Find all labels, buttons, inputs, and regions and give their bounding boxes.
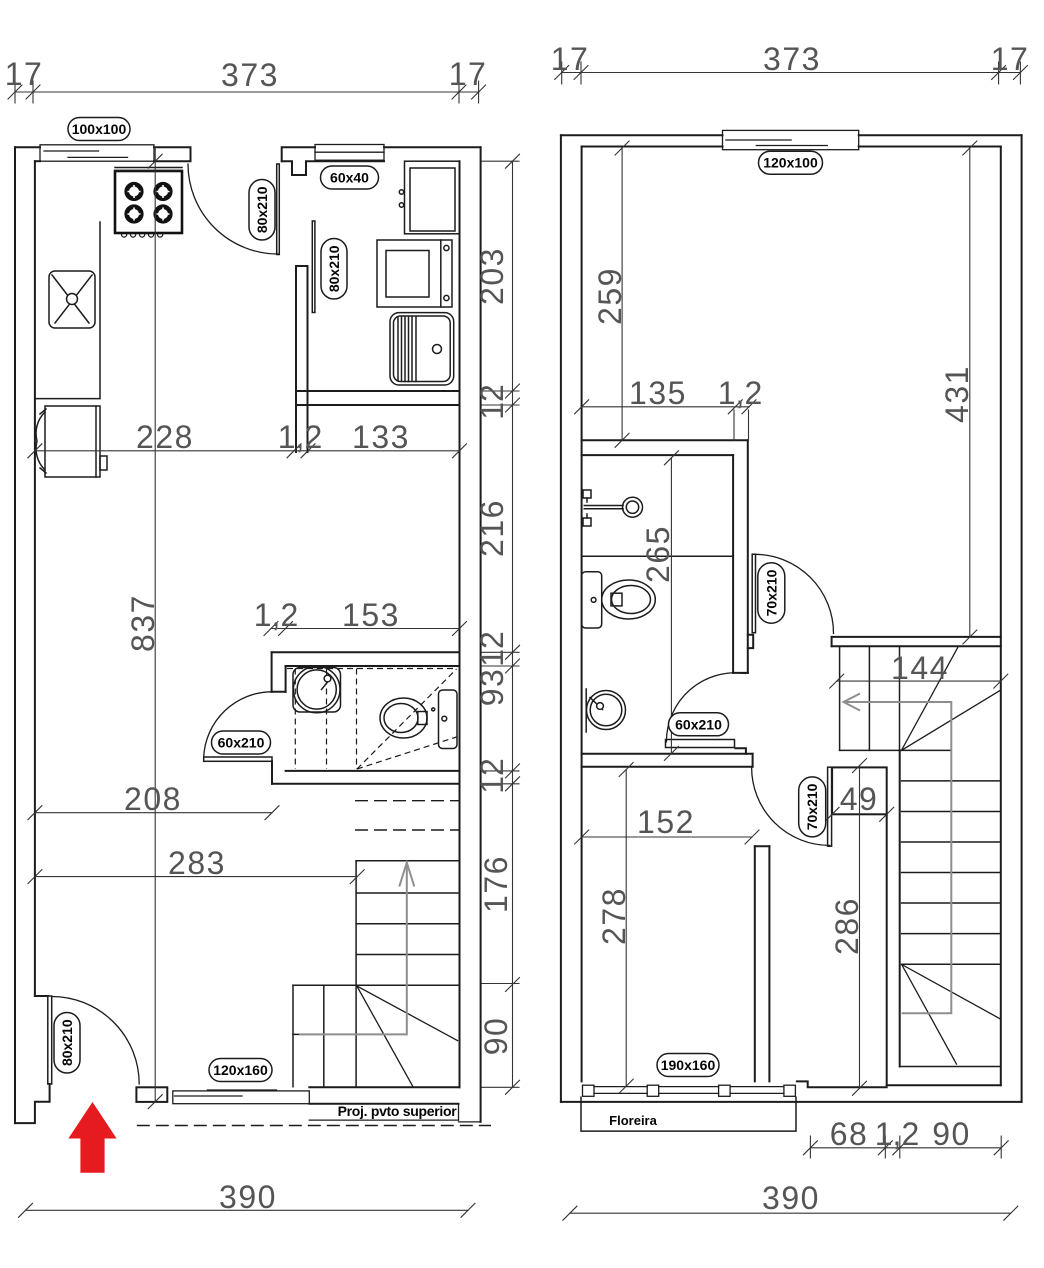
svg-text:17: 17 — [5, 56, 44, 92]
svg-text:1,2: 1,2 — [718, 375, 762, 411]
svg-text:144: 144 — [891, 650, 949, 686]
svg-text:68: 68 — [830, 1116, 869, 1152]
svg-text:133: 133 — [352, 419, 410, 455]
svg-text:153: 153 — [342, 597, 400, 633]
svg-text:60x40: 60x40 — [330, 170, 369, 186]
svg-text:80x210: 80x210 — [254, 186, 270, 233]
svg-text:216: 216 — [474, 499, 510, 557]
svg-text:17: 17 — [551, 41, 590, 77]
svg-text:228: 228 — [136, 419, 194, 455]
svg-text:176: 176 — [478, 855, 514, 913]
svg-text:90: 90 — [932, 1116, 971, 1152]
svg-text:390: 390 — [219, 1179, 277, 1215]
svg-text:1,2: 1,2 — [875, 1116, 919, 1152]
svg-text:93: 93 — [474, 668, 510, 707]
svg-text:12: 12 — [474, 631, 510, 667]
svg-text:278: 278 — [596, 887, 632, 945]
svg-text:100x100: 100x100 — [72, 121, 127, 137]
svg-text:283: 283 — [168, 845, 226, 881]
svg-text:1,2: 1,2 — [278, 419, 322, 455]
svg-text:17: 17 — [991, 41, 1030, 77]
svg-text:203: 203 — [474, 247, 510, 305]
svg-text:Floreira: Floreira — [609, 1113, 657, 1128]
svg-text:60x210: 60x210 — [218, 735, 265, 751]
svg-text:1,2: 1,2 — [254, 597, 298, 633]
svg-text:208: 208 — [124, 781, 182, 817]
svg-text:265: 265 — [640, 525, 676, 583]
svg-text:70x210: 70x210 — [804, 783, 820, 830]
svg-text:80x210: 80x210 — [326, 245, 342, 292]
svg-text:390: 390 — [762, 1180, 820, 1216]
svg-text:373: 373 — [763, 41, 821, 77]
svg-text:70x210: 70x210 — [763, 569, 779, 616]
svg-text:120x160: 120x160 — [213, 1062, 268, 1078]
svg-text:17: 17 — [449, 56, 488, 92]
svg-text:135: 135 — [629, 375, 687, 411]
svg-text:373: 373 — [221, 57, 279, 93]
svg-text:120x100: 120x100 — [763, 155, 818, 171]
svg-text:12: 12 — [474, 384, 510, 420]
svg-text:152: 152 — [637, 804, 695, 840]
svg-text:49: 49 — [840, 781, 879, 817]
svg-text:259: 259 — [592, 267, 628, 325]
svg-text:190x160: 190x160 — [661, 1057, 716, 1073]
svg-text:286: 286 — [829, 897, 865, 955]
svg-text:Proj. pvto superior: Proj. pvto superior — [338, 1103, 458, 1119]
svg-text:431: 431 — [939, 365, 975, 423]
svg-text:80x210: 80x210 — [59, 1019, 75, 1066]
svg-text:60x210: 60x210 — [675, 716, 722, 732]
svg-text:12: 12 — [474, 758, 510, 794]
svg-text:90: 90 — [478, 1017, 514, 1056]
svg-text:837: 837 — [125, 594, 161, 652]
